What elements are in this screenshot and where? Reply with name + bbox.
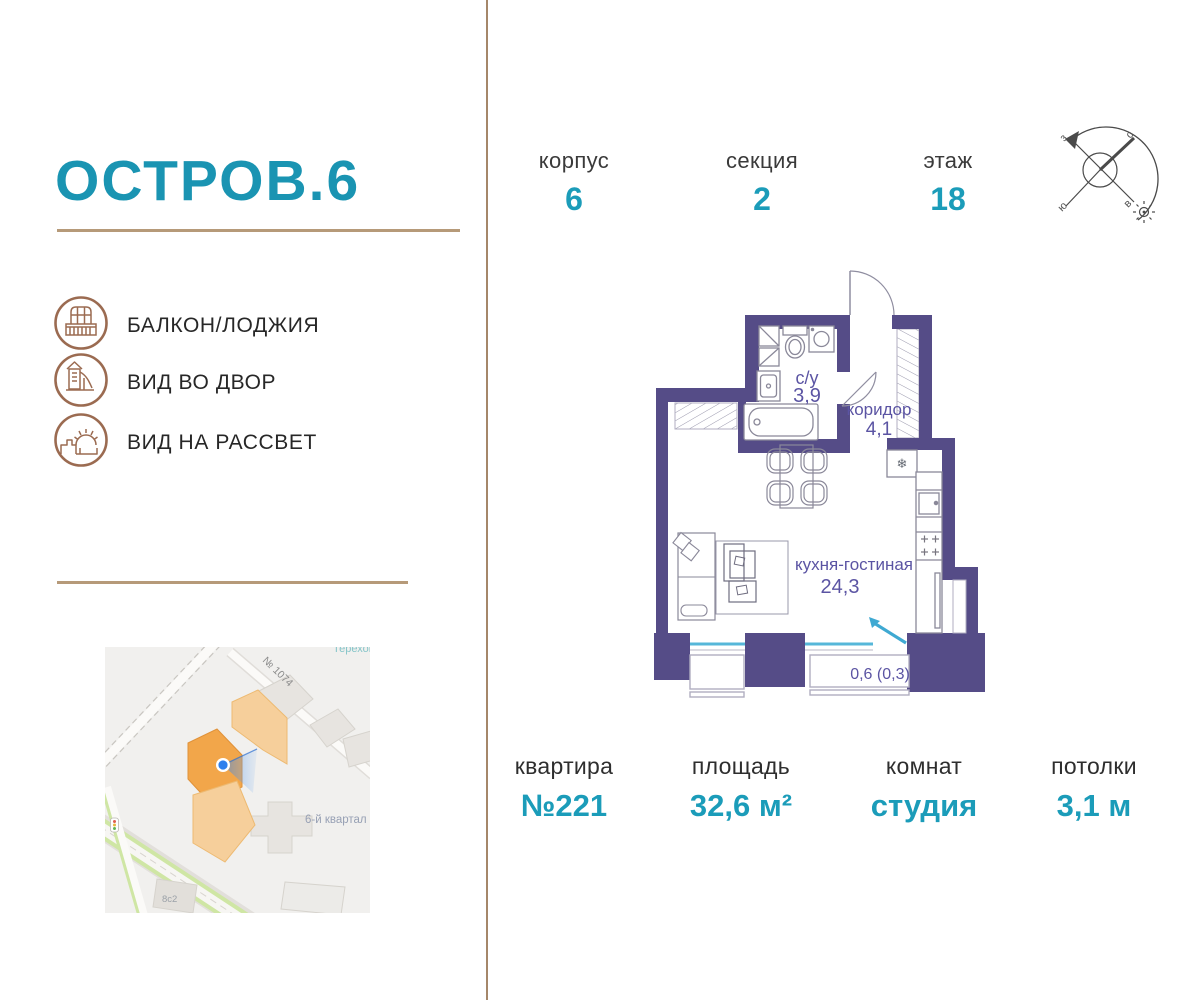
room-area-kitchen-living: 24,3 bbox=[821, 576, 860, 598]
floor-plan: ❄ bbox=[640, 255, 1000, 720]
map-district-label: 6-й квартал bbox=[305, 814, 367, 826]
stat-value: 3,1 м bbox=[989, 788, 1199, 824]
map-area-label: Терехово bbox=[333, 647, 370, 655]
feature-balcony: БАЛКОН/ЛОДЖИЯ bbox=[53, 295, 319, 356]
feature-label: БАЛКОН/ЛОДЖИЯ bbox=[127, 314, 319, 338]
room-area-corridor: 4,1 bbox=[866, 419, 892, 440]
bed-and-desk bbox=[673, 533, 788, 620]
stat-area: площадь 32,6 м² bbox=[636, 753, 846, 824]
dining-set bbox=[767, 445, 827, 508]
map-building-label: 8с2 bbox=[162, 894, 177, 905]
balcony-door bbox=[869, 617, 906, 643]
stat-value: 6 bbox=[474, 181, 674, 218]
stat-label: площадь bbox=[636, 753, 846, 780]
traffic-light-icon bbox=[111, 818, 119, 832]
project-logo: ОСТРОВ.6 bbox=[55, 148, 360, 214]
stat-value: 18 bbox=[848, 181, 1048, 218]
side-niche bbox=[953, 580, 966, 633]
room-label-corridor: коридор bbox=[847, 400, 912, 419]
stat-building: корпус 6 bbox=[474, 148, 674, 218]
stat-label: этаж bbox=[848, 148, 1048, 174]
sunrise-icon bbox=[53, 412, 109, 473]
stat-floor: этаж 18 bbox=[848, 148, 1048, 218]
balcony-icon bbox=[53, 295, 109, 356]
compass-icon: з с ю в bbox=[1038, 124, 1168, 233]
stat-label: потолки bbox=[989, 753, 1199, 780]
entry-door bbox=[850, 271, 894, 315]
location-map[interactable]: № 1074 6-й квартал 8с2 Терехово bbox=[105, 647, 370, 913]
divider-line-top bbox=[57, 229, 460, 232]
compass-east: в bbox=[1122, 197, 1135, 210]
room-area-bathroom: 3,9 bbox=[793, 385, 821, 407]
stat-section: секция 2 bbox=[662, 148, 862, 218]
feature-label: ВИД НА РАССВЕТ bbox=[127, 431, 317, 455]
fridge-symbol: ❄ bbox=[897, 456, 908, 471]
stat-value: 2 bbox=[662, 181, 862, 218]
room-label-kitchen-living: кухня-гостиная bbox=[795, 555, 913, 574]
apartment-card: ОСТРОВ.6 БАЛКОН/ЛОДЖИЯ bbox=[0, 0, 1200, 1000]
feature-courtyard-view: ВИД ВО ДВОР bbox=[53, 352, 276, 413]
kitchen-fixtures bbox=[887, 450, 942, 633]
feature-label: ВИД ВО ДВОР bbox=[127, 371, 276, 395]
stat-value: 32,6 м² bbox=[636, 788, 846, 824]
feature-sunrise-view: ВИД НА РАССВЕТ bbox=[53, 412, 317, 473]
room-area-balcony: 0,6 (0,3) bbox=[850, 666, 910, 683]
playground-icon bbox=[53, 352, 109, 413]
stat-ceiling: потолки 3,1 м bbox=[989, 753, 1199, 824]
stat-label: корпус bbox=[474, 148, 674, 174]
divider-line-map bbox=[57, 581, 408, 584]
compass-south: ю bbox=[1056, 200, 1070, 214]
stat-label: секция bbox=[662, 148, 862, 174]
